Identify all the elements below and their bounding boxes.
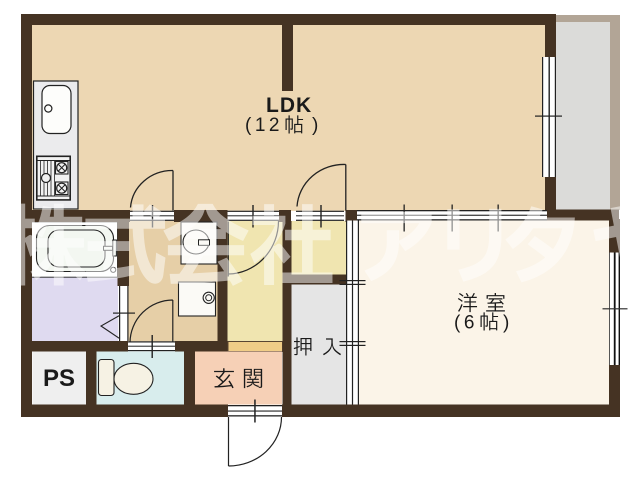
- svg-text:LDK: LDK: [266, 94, 312, 117]
- svg-text:): ): [312, 115, 318, 136]
- svg-text:PS: PS: [43, 365, 75, 392]
- svg-text:(12: (12: [245, 115, 283, 136]
- svg-text:): ): [503, 313, 509, 334]
- svg-text:(6: (6: [454, 313, 478, 334]
